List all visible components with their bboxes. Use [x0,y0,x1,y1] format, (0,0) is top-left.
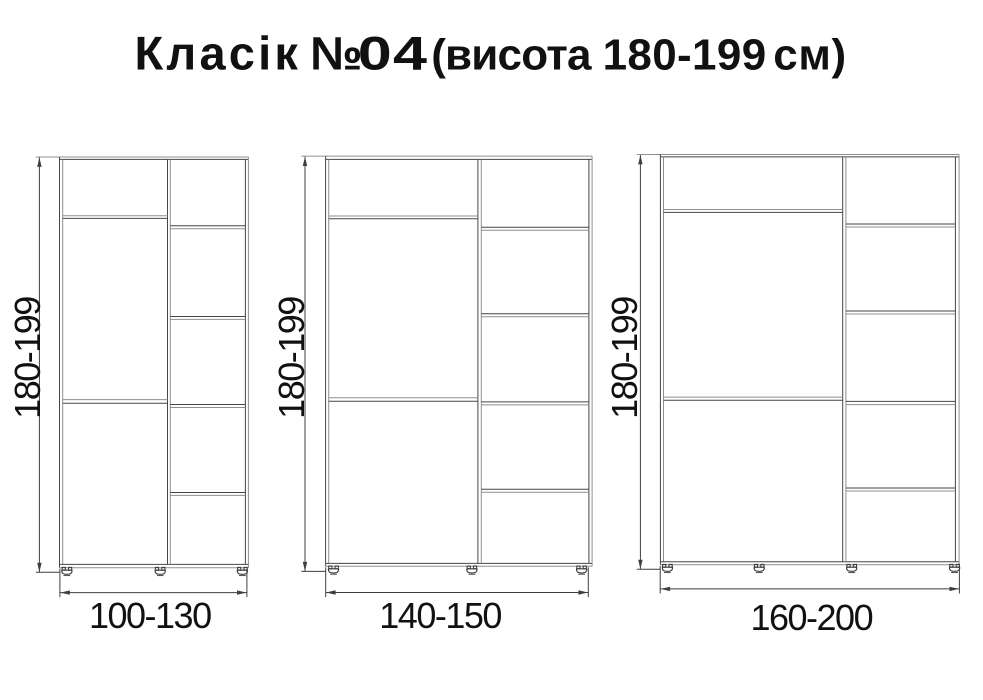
svg-text:№: № [310,26,362,79]
svg-text:180-199: 180-199 [604,297,645,419]
svg-text:04: 04 [358,27,429,80]
svg-text:180-199: 180-199 [271,297,312,419]
svg-text:(висота180-199см): (висота180-199см) [431,30,847,79]
svg-text:180-199: 180-199 [7,297,48,419]
svg-text:Класік: Класік [135,26,302,79]
svg-text:100-130: 100-130 [89,595,211,636]
svg-text:140-150: 140-150 [379,595,501,636]
svg-text:160-200: 160-200 [750,597,872,638]
